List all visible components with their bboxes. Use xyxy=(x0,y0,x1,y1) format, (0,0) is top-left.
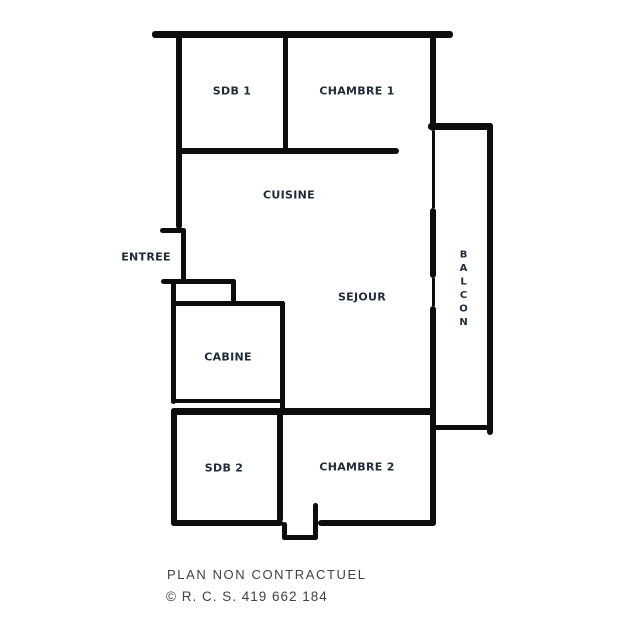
floor-plan: SDB 1 CHAMBRE 1 CUISINE ENTREE SEJOUR CA… xyxy=(0,0,640,640)
wall-right-upper xyxy=(430,36,436,131)
room-label-chambre2: CHAMBRE 2 xyxy=(319,461,394,474)
wall-entree-right xyxy=(181,228,186,282)
footer-disclaimer: PLAN NON CONTRACTUEL xyxy=(167,567,367,582)
room-label-sdb1: SDB 1 xyxy=(213,85,251,98)
wall-balcon-bottom xyxy=(433,425,490,430)
room-label-chambre1: CHAMBRE 1 xyxy=(319,85,394,98)
wall-cuisine-top xyxy=(178,148,399,154)
wall-sdb2-left xyxy=(171,408,177,526)
window-sejour-lower xyxy=(432,278,435,306)
wall-balcon-top xyxy=(428,123,493,130)
footer-registration: © R. C. S. 419 662 184 xyxy=(166,589,328,604)
wall-cabine-left xyxy=(171,279,176,404)
wall-balcon-right xyxy=(487,123,493,435)
wall-right-mid xyxy=(430,208,436,278)
wall-left xyxy=(176,33,182,229)
room-label-entree: ENTREE xyxy=(121,251,171,264)
wall-threshold-bottom xyxy=(282,535,318,540)
wall-sejour-bottom xyxy=(171,408,436,415)
room-label-cuisine: CUISINE xyxy=(263,189,315,202)
room-label-balcon: BALCON xyxy=(458,250,468,331)
wall-bottom-right xyxy=(318,520,436,526)
wall-divider-sdb1-chambre1 xyxy=(283,35,288,151)
wall-bottom-left xyxy=(171,520,283,526)
room-label-sejour: SEJOUR xyxy=(338,291,386,304)
room-label-cabine: CABINE xyxy=(204,351,252,364)
wall-cabine-top xyxy=(171,301,285,306)
wall-divider-sdb2-chambre2 xyxy=(277,408,283,522)
wall-top xyxy=(152,31,453,38)
room-label-sdb2: SDB 2 xyxy=(205,462,243,475)
wall-cabine-bottom xyxy=(171,399,284,403)
wall-cabine-right xyxy=(280,301,285,411)
window-sejour-upper xyxy=(432,131,435,208)
wall-right-lower xyxy=(430,306,436,526)
